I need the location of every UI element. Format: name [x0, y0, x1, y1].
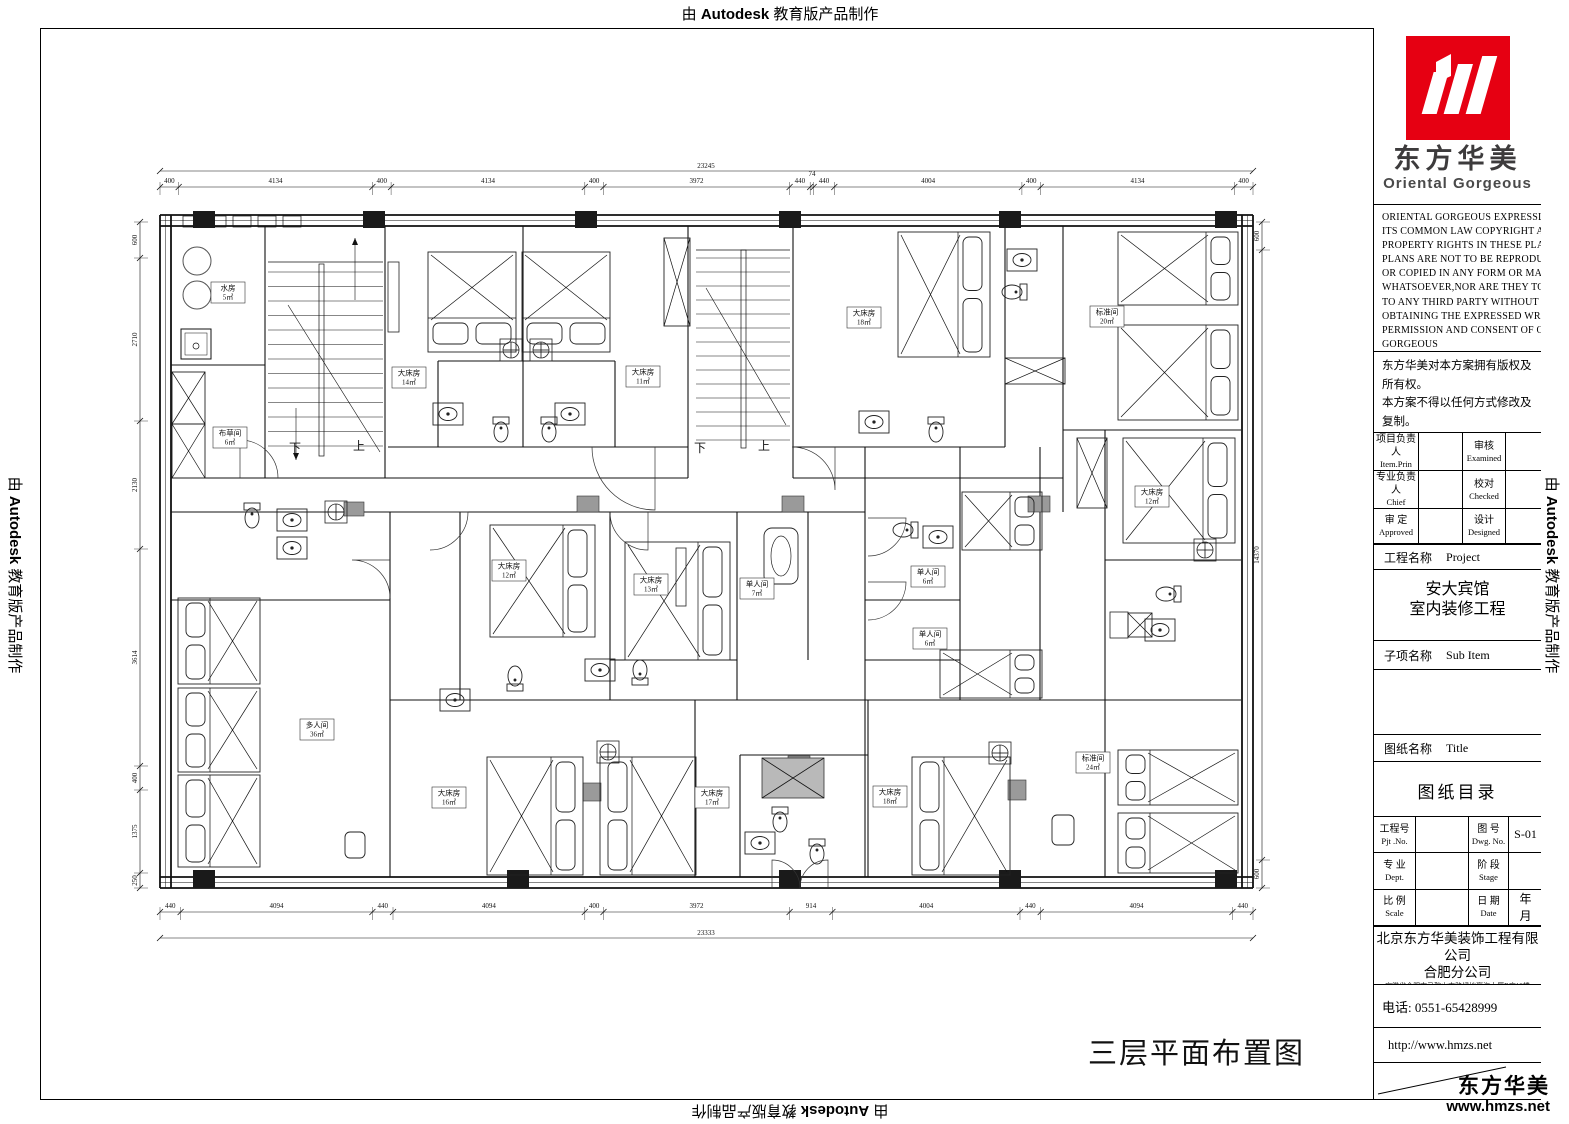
room-area-label: 14㎡ — [402, 379, 416, 387]
sub-item-row: 子项名称 Sub Item — [1374, 641, 1541, 670]
field-item-principal-value — [1419, 433, 1463, 471]
stair-down-label: 下 — [694, 441, 706, 455]
room-area-label: 6㎡ — [925, 640, 936, 648]
room-label: 大床房 — [701, 788, 724, 798]
field-drawing-no: 图 号 Dwg. No. — [1469, 817, 1509, 853]
dimension-total: 23333 — [697, 929, 715, 937]
project-name: 安大宾馆 室内装修工程 — [1374, 570, 1541, 641]
room-area-label: 17㎡ — [705, 799, 719, 807]
dimension-value: 440 — [1025, 902, 1036, 910]
dimension-total: 23245 — [697, 162, 715, 170]
plan-title: 三层平面布置图 — [1088, 1030, 1308, 1072]
copyright-line: ITS COMMON LAW COPYRIGHT AND OTHER — [1382, 225, 1535, 239]
corner-brand-cn: 东方华美 — [1430, 1076, 1550, 1097]
copyright-line: PERMISSION AND CONSENT OF ORIENTAL — [1382, 324, 1535, 338]
dimension-value: 440 — [377, 902, 388, 910]
dimension-value: 1375 — [131, 824, 139, 839]
room-area-label: 6㎡ — [225, 439, 236, 447]
room-label: 大床房 — [1141, 487, 1164, 497]
room-label: 水房 — [221, 283, 236, 293]
copyright-line: OR COPIED IN ANY FORM OR MANNER — [1382, 267, 1535, 281]
dimension-value: 4134 — [269, 177, 284, 185]
company-name: 北京东方华美装饰工程有限公司 — [1374, 930, 1541, 964]
field-item-principal: 项目负责人 Item.Prin — [1374, 433, 1419, 471]
dimension-value: 2710 — [131, 332, 139, 347]
dimension-value: 2130 — [131, 478, 139, 493]
field-approved-value — [1419, 509, 1463, 544]
field-stage-value — [1509, 853, 1541, 889]
field-stage: 阶 段 Stage — [1469, 853, 1509, 889]
room-area-label: 16㎡ — [442, 799, 456, 807]
project-label-row: 工程名称 Project — [1374, 545, 1541, 570]
copyright-english: ORIENTAL GORGEOUS EXPRESSLY RESERVES ITS… — [1374, 205, 1541, 352]
room-area-label: 18㎡ — [857, 319, 871, 327]
room-label: 大床房 — [438, 788, 461, 798]
field-examined-value — [1506, 433, 1541, 471]
room-area-label: 7㎡ — [752, 590, 763, 598]
room-area-label: 6㎡ — [923, 578, 934, 586]
corner-brand-url: www.hmzs.net — [1430, 1099, 1550, 1114]
personnel-grid: 项目负责人 Item.Prin 审核 Examined 专业负责人 Chief … — [1374, 433, 1541, 545]
room-label: 标准间 — [1082, 753, 1105, 763]
copyright-line: 东方华美对本方案拥有版权及所有权。 — [1382, 357, 1535, 394]
room-label: 单人间 — [746, 579, 769, 589]
field-dept-value — [1416, 853, 1469, 889]
dimension-value: 400 — [1026, 177, 1037, 185]
drawing-no-value: S-01 — [1509, 817, 1541, 853]
room-area-label: 5㎡ — [223, 294, 234, 302]
room-label: 大床房 — [879, 787, 902, 797]
sheet-title-row: 图纸名称 Title — [1374, 735, 1541, 762]
room-label: 大床房 — [853, 308, 876, 318]
field-scale-value — [1416, 890, 1469, 926]
room-area-label: 12㎡ — [502, 572, 516, 580]
date-value: 年 月 — [1509, 890, 1541, 926]
drawing-sheet: 由 Autodesk 教育版产品制作 由 Autodesk 教育版产品制作 由 … — [0, 0, 1569, 1124]
copyright-line: ORIENTAL GORGEOUS EXPRESSLY RESERVES — [1382, 211, 1535, 225]
field-checked: 校对 Checked — [1463, 471, 1506, 509]
room-label: 单人间 — [919, 629, 942, 639]
dimension-value: 400 — [164, 177, 175, 185]
dimension-value: 4134 — [1131, 177, 1146, 185]
room-area-label: 24㎡ — [1086, 764, 1100, 772]
dimension-value: 3972 — [690, 177, 705, 185]
field-project-no-value — [1416, 817, 1469, 853]
dimension-value: 600 — [131, 234, 139, 245]
room-area-label: 13㎡ — [644, 586, 658, 594]
copyright-line: PLANS ARE NOT TO BE REPRODUCED CHANGED — [1382, 253, 1535, 267]
corner-brand: 东方华美 www.hmzs.net — [1430, 1076, 1550, 1114]
field-examined: 审核 Examined — [1463, 433, 1506, 471]
company-branch: 合肥分公司 — [1374, 964, 1541, 981]
sheet-name: 图纸目录 — [1374, 762, 1541, 817]
dimension-value: 400 — [589, 902, 600, 910]
floor-plan-drawing: 4004134400413440039724407444040044004134… — [0, 0, 1569, 1124]
stair-up-label: 上 — [758, 439, 770, 453]
dimension-value: 600 — [1253, 868, 1261, 879]
field-date: 日 期 Date — [1469, 890, 1509, 926]
copyright-chinese: 东方华美对本方案拥有版权及所有权。 本方案不得以任何方式修改及复制。 未经东方华… — [1374, 352, 1541, 433]
field-chief-value — [1419, 471, 1463, 509]
room-area-label: 18㎡ — [883, 798, 897, 806]
sub-item-value — [1374, 670, 1541, 735]
room-label: 单人间 — [917, 567, 940, 577]
room-area-label: 11㎡ — [636, 378, 650, 386]
company-website: http://www.hmzs.net — [1374, 1028, 1541, 1063]
copyright-line: GORGEOUS — [1382, 338, 1535, 352]
room-label: 大床房 — [398, 368, 421, 378]
dimension-value: 914 — [806, 902, 817, 910]
logo-section: 东方华美 Oriental Gorgeous — [1374, 28, 1541, 205]
dimension-value: 400 — [377, 177, 388, 185]
number-grid: 工程号 Pjt .No. 图 号 Dwg. No. S-01 专 业 Dept.… — [1374, 817, 1541, 927]
dimension-value: 4094 — [1130, 902, 1145, 910]
field-project-no: 工程号 Pjt .No. — [1374, 817, 1416, 853]
room-label: 大床房 — [632, 367, 655, 377]
dimension-value: 600 — [1253, 230, 1261, 241]
dimension-value: 400 — [1238, 177, 1249, 185]
room-label: 大床房 — [640, 575, 663, 585]
brand-name-cn: 东方华美 — [1374, 144, 1541, 174]
field-designed: 设计 Designed — [1463, 509, 1506, 544]
dimension-value: 440 — [819, 177, 830, 185]
dimension-value: 440 — [795, 177, 806, 185]
dimension-value: 400 — [131, 772, 139, 783]
copyright-line: WHATSOEVER,NOR ARE THEY TO BE ASSIGHED — [1382, 281, 1535, 295]
dimension-value: 3972 — [690, 902, 705, 910]
room-area-label: 20㎡ — [1100, 318, 1114, 326]
field-scale: 比 例 Scale — [1374, 890, 1416, 926]
dimension-value: 4094 — [270, 902, 285, 910]
dimension-value: 4134 — [481, 177, 496, 185]
dimension-value: 4004 — [919, 902, 934, 910]
field-chief: 专业负责人 Chief — [1374, 471, 1419, 509]
oriental-gorgeous-logo-icon — [1406, 36, 1510, 140]
room-area-label: 12㎡ — [1145, 498, 1159, 506]
room-label: 布草间 — [219, 428, 242, 438]
dimension-value: 14370 — [1253, 546, 1261, 564]
dimension-value: 440 — [1237, 902, 1248, 910]
field-checked-value — [1506, 471, 1541, 509]
brand-name-en: Oriental Gorgeous — [1374, 174, 1541, 194]
field-designed-value — [1506, 509, 1541, 544]
copyright-line: TO ANY THIRD PARTY WITHOUT FIRST — [1382, 296, 1535, 310]
company-section: 北京东方华美装饰工程有限公司 合肥分公司 安徽省合肥市马鞍山南路绿地赢海大厦B座… — [1374, 927, 1541, 985]
stair-down-label: 下 — [289, 441, 301, 455]
dimension-value: 3614 — [131, 650, 139, 665]
field-approved: 审 定 Approved — [1374, 509, 1419, 544]
dimension-value: 4004 — [921, 177, 936, 185]
room-label: 多人间 — [306, 720, 329, 730]
dimension-value: 400 — [589, 177, 600, 185]
dimension-value: 4094 — [482, 902, 497, 910]
company-phone: 电话: 0551-65428999 — [1374, 985, 1541, 1028]
room-label: 大床房 — [498, 561, 521, 571]
copyright-line: 本方案不得以任何方式修改及复制。 — [1382, 394, 1535, 431]
copyright-line: OBTAINING THE EXPRESSED WRITTEN — [1382, 310, 1535, 324]
stair-up-label: 上 — [353, 439, 365, 453]
dimension-value: 250 — [131, 875, 139, 886]
field-dept: 专 业 Dept. — [1374, 853, 1416, 889]
room-label: 标准间 — [1096, 307, 1119, 317]
copyright-line: PROPERTY RIGHTS IN THESE PLANS.THESE — [1382, 239, 1535, 253]
dimension-value: 440 — [165, 902, 176, 910]
room-area-label: 36㎡ — [310, 731, 324, 739]
title-block: 东方华美 Oriental Gorgeous ORIENTAL GORGEOUS… — [1373, 28, 1541, 1100]
